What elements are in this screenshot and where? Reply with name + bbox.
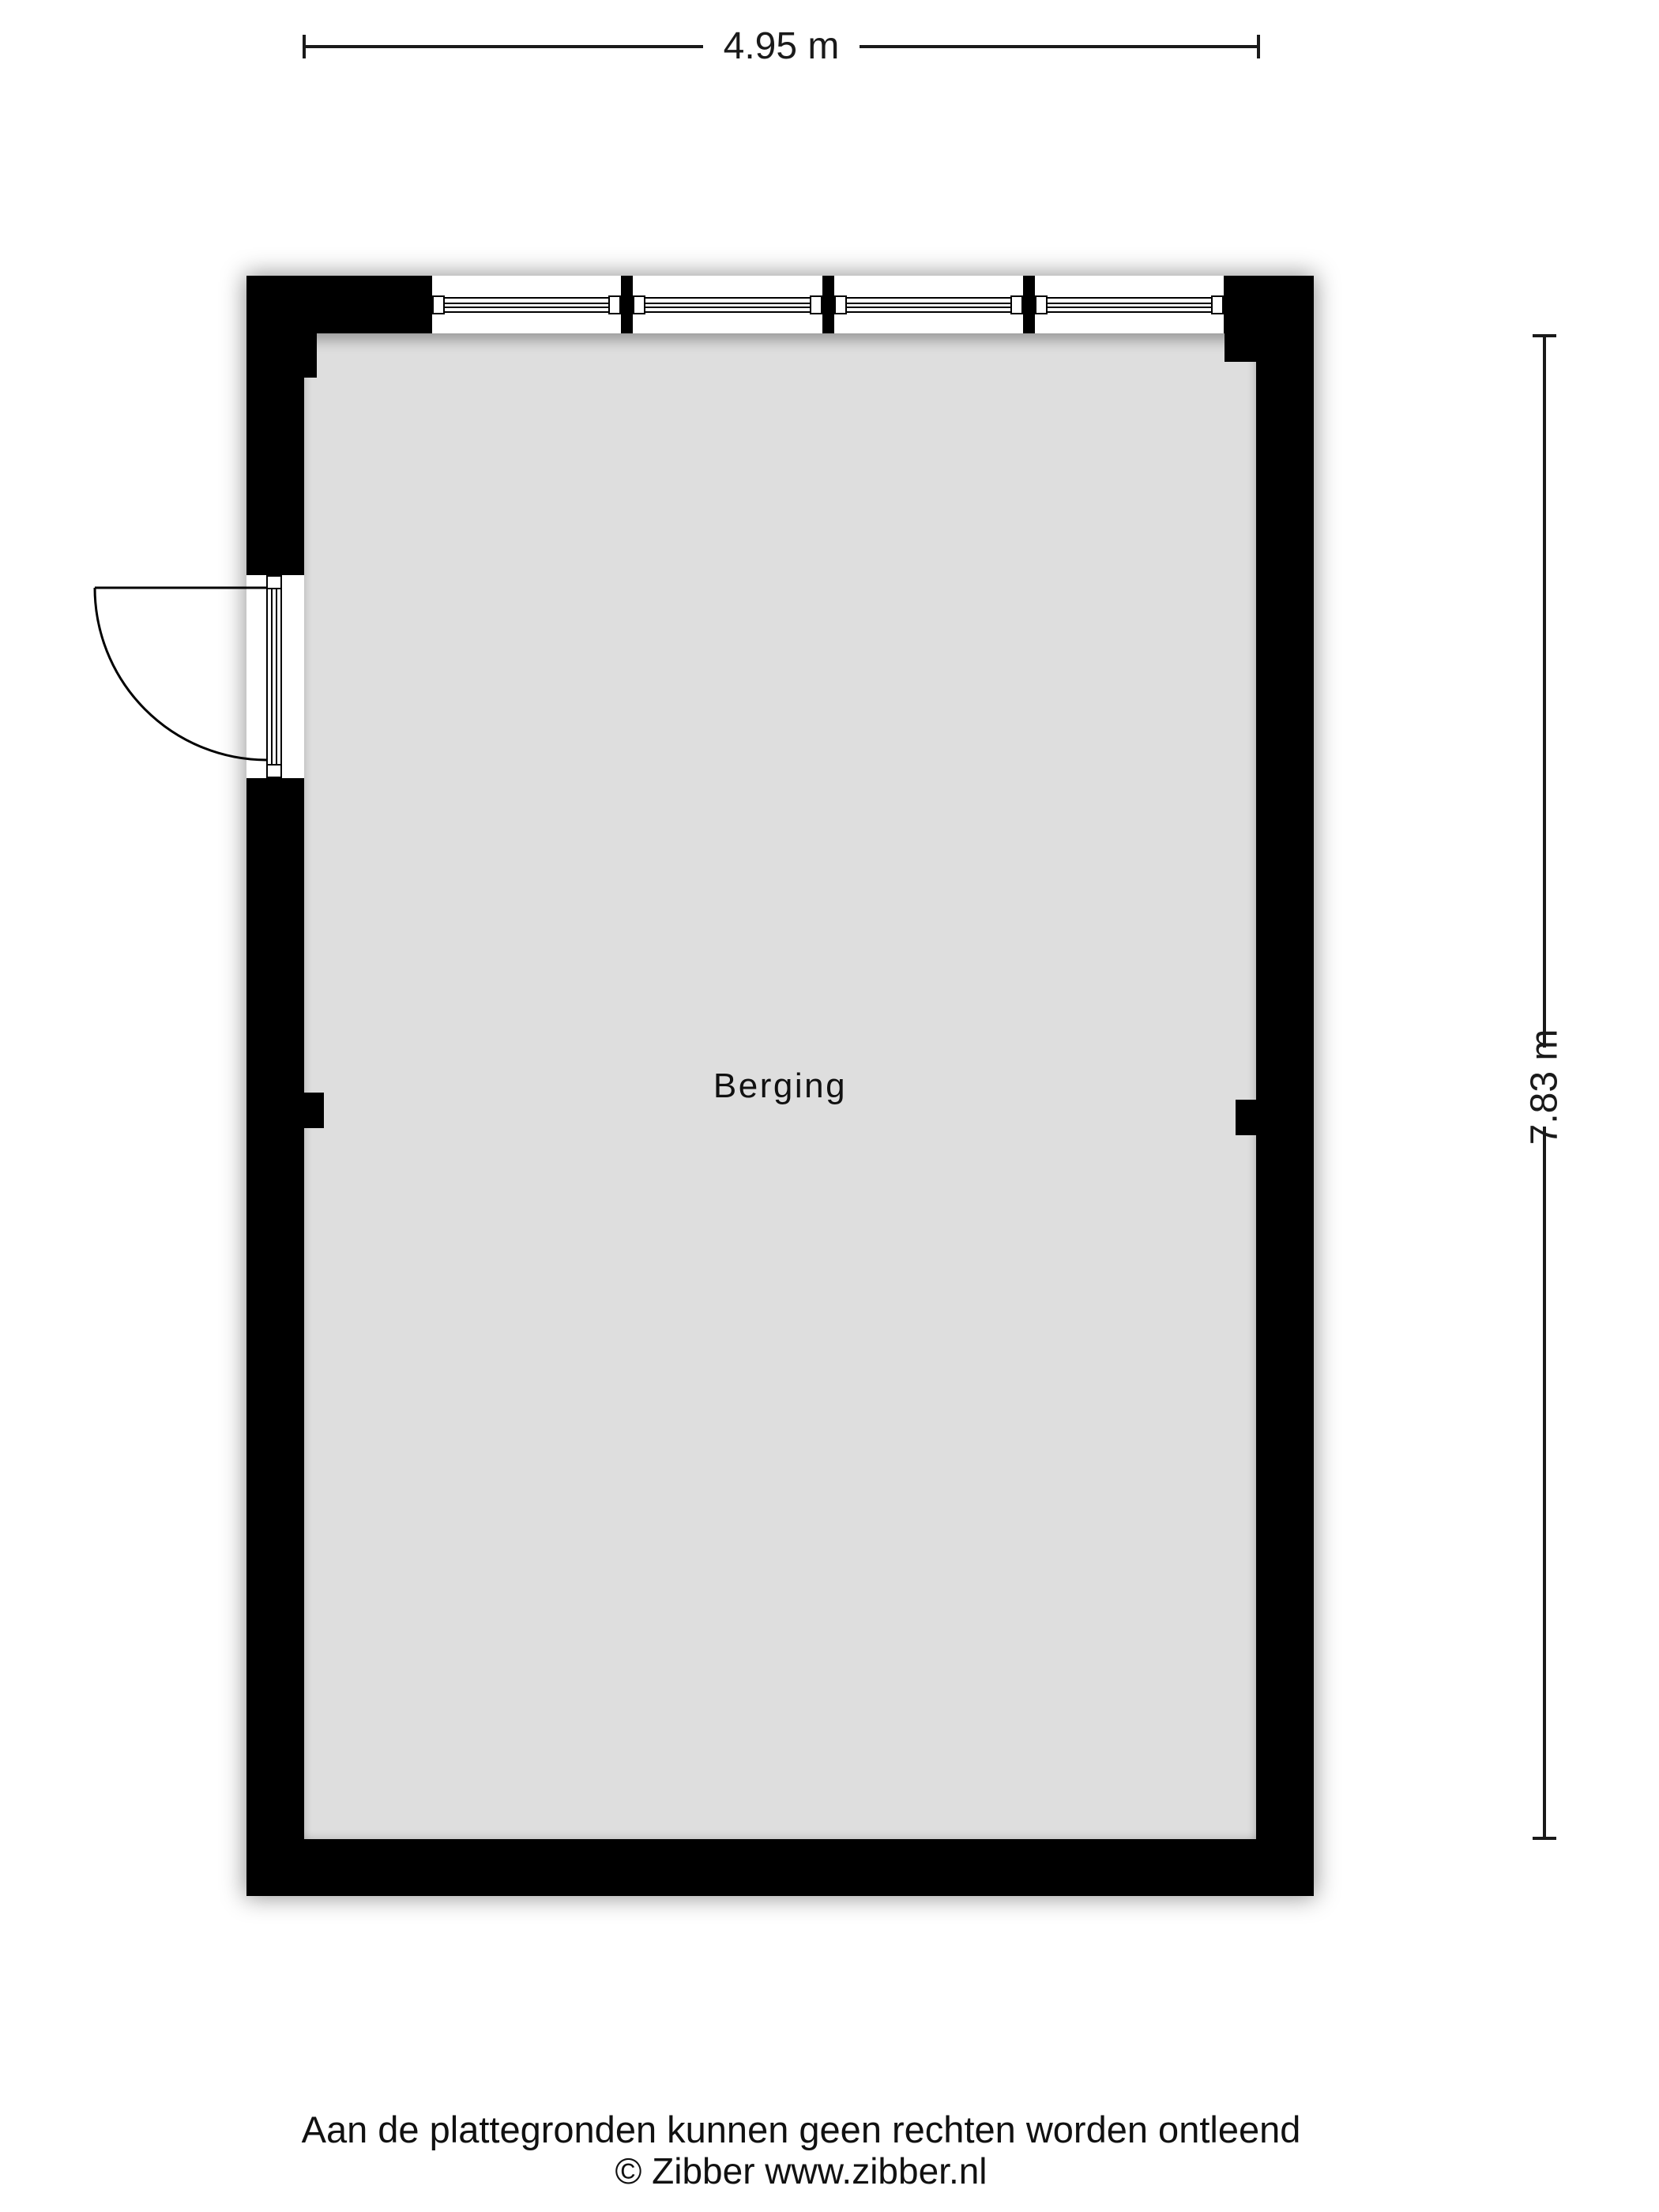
dimension-line-left-segment bbox=[306, 45, 703, 48]
window-frame-cap bbox=[608, 295, 621, 314]
dimension-width-label: 4.95 m bbox=[703, 28, 860, 66]
disclaimer-text: Aan de plattegronden kunnen geen rechten… bbox=[0, 2109, 1631, 2150]
window-frame-cap bbox=[810, 295, 822, 314]
window-glazing bbox=[1046, 297, 1213, 313]
window-frame-cap bbox=[1010, 295, 1023, 314]
dimension-line-right-segment bbox=[860, 45, 1257, 48]
floor-plan: Berging bbox=[246, 276, 1314, 1896]
dimension-line-bottom-segment bbox=[1543, 1127, 1546, 1837]
wall-right bbox=[1256, 276, 1314, 1896]
window-segment-2 bbox=[633, 276, 822, 333]
window-glazing bbox=[644, 297, 811, 313]
dimension-height: 7.83 m bbox=[1526, 334, 1563, 1840]
dimension-tick-bottom bbox=[1533, 1837, 1556, 1840]
dimension-width: 4.95 m bbox=[303, 27, 1260, 66]
window-mullion bbox=[1023, 276, 1035, 333]
copyright-text: © Zibber www.zibber.nl bbox=[0, 2150, 1631, 2191]
wall-bottom bbox=[246, 1839, 1314, 1896]
wall-left-lower-segment bbox=[246, 778, 304, 1896]
wall-left-upper-segment bbox=[246, 276, 304, 575]
window-frame-cap bbox=[1211, 295, 1224, 314]
dimension-tick-right bbox=[1257, 35, 1260, 58]
door-swing-icon bbox=[75, 573, 280, 770]
footer: Aan de plattegronden kunnen geen rechten… bbox=[0, 2109, 1631, 2191]
room-name-text: Berging bbox=[713, 1066, 847, 1106]
dimension-line-top-segment bbox=[1543, 337, 1546, 1048]
window-segment-4 bbox=[1035, 276, 1224, 333]
dimension-height-label: 7.83 m bbox=[1505, 1029, 1584, 1145]
window-segment-1 bbox=[432, 276, 621, 333]
window-band bbox=[432, 276, 1224, 333]
window-glazing bbox=[845, 297, 1012, 313]
window-glazing bbox=[443, 297, 610, 313]
window-mullion bbox=[822, 276, 834, 333]
window-segment-3 bbox=[834, 276, 1023, 333]
room-name: Berging bbox=[304, 333, 1256, 1839]
window-mullion bbox=[621, 276, 633, 333]
